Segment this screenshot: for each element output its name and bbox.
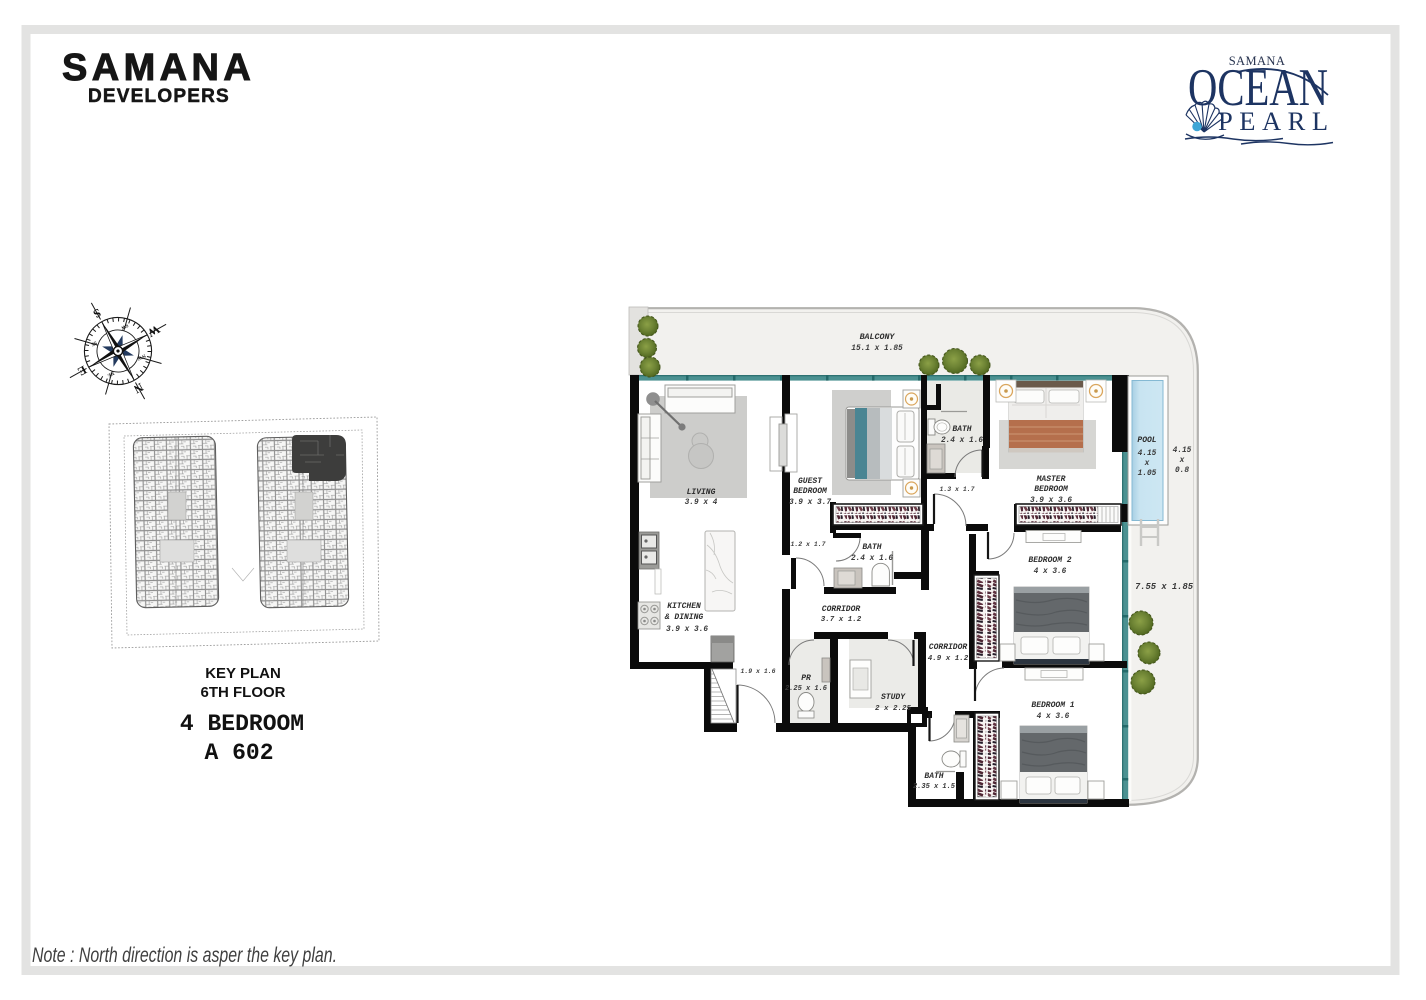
- svg-text:3.9 x 3.6: 3.9 x 3.6: [666, 626, 708, 634]
- svg-text:BEDROOM: BEDROOM: [1034, 485, 1069, 494]
- svg-text:Note : North direction is aspe: Note : North direction is asper the key …: [32, 944, 337, 967]
- svg-text:PR: PR: [801, 674, 811, 683]
- svg-text:POOL: POOL: [1137, 436, 1156, 445]
- svg-text:SAMANA: SAMANA: [62, 47, 255, 89]
- svg-text:2.4 x 1.6: 2.4 x 1.6: [941, 437, 983, 445]
- svg-text:CORRIDOR: CORRIDOR: [929, 643, 968, 652]
- svg-text:GUEST: GUEST: [798, 477, 823, 486]
- svg-text:x: x: [1179, 457, 1185, 465]
- svg-text:BATH: BATH: [862, 543, 881, 552]
- svg-text:7.55 x 1.85: 7.55 x 1.85: [1135, 582, 1194, 592]
- svg-text:1.9 x 1.6: 1.9 x 1.6: [740, 668, 775, 675]
- svg-text:DEVELOPERS: DEVELOPERS: [88, 86, 230, 107]
- svg-text:3.9 x 4: 3.9 x 4: [685, 499, 718, 507]
- svg-text:3.9 x 3.6: 3.9 x 3.6: [1030, 497, 1072, 505]
- svg-text:3.7 x 1.2: 3.7 x 1.2: [821, 616, 862, 624]
- svg-text:A 602: A 602: [204, 740, 273, 766]
- svg-text:2.4 x 1.6: 2.4 x 1.6: [851, 555, 893, 563]
- svg-text:BEDROOM: BEDROOM: [793, 487, 828, 496]
- svg-text:2 x 2.25: 2 x 2.25: [875, 705, 912, 713]
- svg-text:KITCHEN: KITCHEN: [667, 602, 701, 611]
- svg-text:1.3 x 1.7: 1.3 x 1.7: [939, 486, 974, 493]
- svg-text:4.15: 4.15: [1138, 450, 1157, 458]
- svg-text:LIVING: LIVING: [687, 488, 716, 497]
- svg-text:BALCONY: BALCONY: [860, 333, 896, 342]
- svg-text:KEY PLAN: KEY PLAN: [205, 665, 281, 682]
- svg-text:STUDY: STUDY: [881, 693, 906, 702]
- svg-text:2.25 x 1.6: 2.25 x 1.6: [785, 685, 828, 693]
- svg-text:BATH: BATH: [924, 772, 943, 781]
- svg-text:1.05: 1.05: [1138, 470, 1157, 478]
- svg-text:6TH FLOOR: 6TH FLOOR: [201, 684, 286, 701]
- svg-text:CORRIDOR: CORRIDOR: [822, 605, 861, 614]
- svg-text:BATH: BATH: [952, 425, 971, 434]
- svg-text:1.2 x 1.7: 1.2 x 1.7: [790, 541, 825, 548]
- svg-text:4.15: 4.15: [1173, 447, 1192, 455]
- svg-text:OCEAN: OCEAN: [1188, 59, 1328, 117]
- svg-text:2.35 x 1.5: 2.35 x 1.5: [913, 783, 956, 791]
- svg-text:4.9 x 1.2: 4.9 x 1.2: [928, 655, 969, 663]
- svg-text:3.9 x 3.7: 3.9 x 3.7: [789, 499, 831, 507]
- svg-text:4 x 3.6: 4 x 3.6: [1034, 568, 1067, 576]
- svg-text:15.1 x 1.85: 15.1 x 1.85: [851, 345, 903, 353]
- svg-text:4 BEDROOM: 4 BEDROOM: [180, 711, 304, 737]
- svg-text:MASTER: MASTER: [1036, 475, 1066, 484]
- svg-text:& DINING: & DINING: [664, 613, 704, 622]
- svg-text:BEDROOM 2: BEDROOM 2: [1028, 556, 1071, 565]
- svg-text:x: x: [1144, 460, 1150, 468]
- svg-text:0.8: 0.8: [1175, 467, 1189, 475]
- svg-text:4 x 3.6: 4 x 3.6: [1037, 713, 1070, 721]
- svg-text:BEDROOM 1: BEDROOM 1: [1031, 701, 1074, 710]
